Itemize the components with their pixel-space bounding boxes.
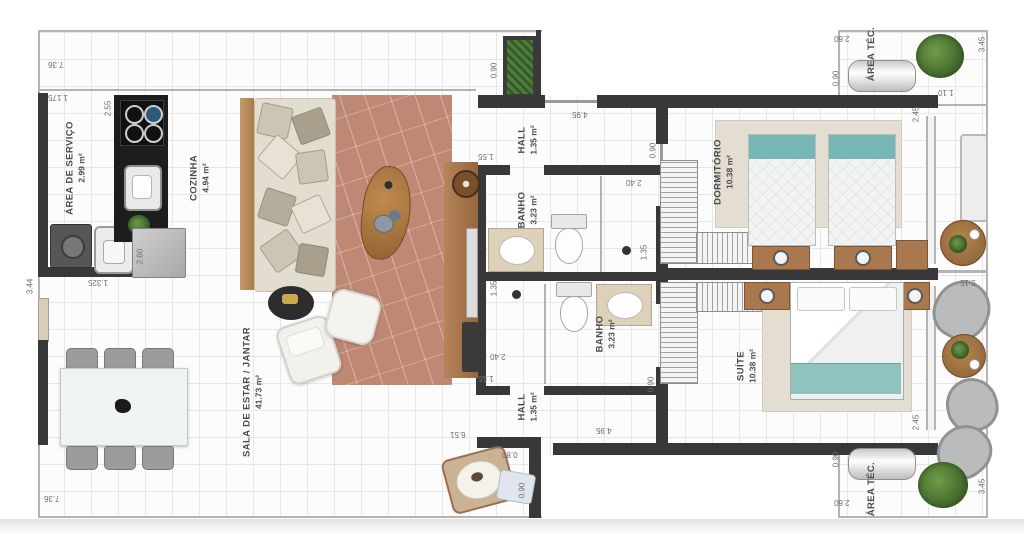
dimension-label: 1.35 [639,245,648,261]
page-shadow [0,519,1024,534]
dimension-label: 6.51 [450,430,466,439]
room-label-hall-inferior: HALL 1.35 m² [516,392,539,421]
wall-clock-icon [452,170,480,198]
dimension-label: 1.175 [48,93,68,102]
dimension-label: 2.60 [135,249,144,265]
dormitorio-desk [896,240,928,270]
dimension-label: 3.44 [25,279,34,295]
outside-area-top [543,30,838,96]
dining-table [60,368,188,446]
room-name: SALA DE ESTAR / JANTAR [241,327,253,457]
wall-planter-side [536,30,541,97]
room-area: 41.73 m² [254,327,265,457]
cooktop-icon [120,100,164,146]
outline-top [38,30,542,32]
room-area: 10.38 m² [748,349,759,383]
room-name: COZINHA [188,155,200,201]
suite-closet-vertical [660,282,698,384]
balcony-table-1 [940,220,986,266]
room-label-area-tec-inferior: ÁREA TÉC. [866,462,878,516]
dimension-label: 2.60 [834,34,850,43]
suite-nightstand-left [744,282,790,310]
room-label-suite: SUÍTE 10.38 m² [735,349,758,383]
floorplan-canvas: { "rooms": { "area_servico": {"name": "Á… [0,0,1024,534]
wall-divider-a [656,108,668,144]
banho2-shower-head [512,290,521,299]
dormitorio-closet-vertical [660,160,698,264]
banho2-toilet-bowl [560,296,588,332]
room-area: 10.38 m² [725,139,736,205]
bush-top-right [916,34,964,78]
banho1-toilet-bowl [555,228,583,264]
dimension-label: 5.15 [960,278,976,287]
room-name: HALL [516,392,528,421]
kitchen-sink-icon [124,165,162,211]
sofa [254,98,336,292]
banho1-shower-head [622,246,631,255]
washing-machine [50,224,92,268]
balcony-bench [960,134,988,222]
dimension-label: 1.55 [478,374,494,383]
dimension-label: 1.35 [489,281,498,297]
single-bed-2 [828,134,896,246]
room-area: 1.35 m² [529,392,540,421]
dimension-label: 4.95 [572,110,588,119]
table-centerpiece [115,399,131,413]
dimension-label: 2.45 [911,107,920,123]
dimension-label: 1.55 [478,152,494,161]
room-label-dormitorio: DORMITÓRIO 10.38 m² [712,139,735,205]
wall-banho1-top-b [544,165,668,175]
dining-chair [66,446,98,470]
dimension-label: 0.90 [648,143,657,159]
side-table [268,286,314,320]
room-name: BANHO [516,192,528,229]
outline-top-right [838,30,988,32]
room-area: 3.23 m² [529,192,540,229]
water-heater-bottom [848,448,916,480]
water-heater-top [848,60,916,92]
dimension-label: 2.60 [834,498,850,507]
dimension-label: 3.45 [977,37,986,53]
double-bed [790,282,904,400]
planter-box [503,36,537,98]
wall-dining-left [38,340,48,445]
banho2-toilet-tank [556,282,592,297]
banho1-shower-glass [600,176,602,272]
dimension-label: 0.90 [517,483,526,499]
room-label-area-tec-superior: ÁREA TÉC. [866,27,878,81]
room-area: 4.94 m² [201,155,212,201]
tv-screen [466,228,478,318]
banho2-shower-glass [544,284,546,384]
room-area: 2.99 m² [77,121,88,215]
room-name: ÁREA DE SERVIÇO [64,121,76,215]
room-label-area-servico: ÁREA DE SERVIÇO 2.99 m² [64,121,87,215]
outline-bottom [38,516,542,518]
dormitorio-nightstand-2 [834,246,892,270]
pillow [849,287,897,311]
room-label-sala: SALA DE ESTAR / JANTAR 41.73 m² [241,327,264,457]
dining-chair [142,446,174,470]
room-name: BANHO [594,316,606,353]
room-area: 1.35 m² [529,125,540,154]
dimension-label: 2.55 [103,101,112,117]
dimension-label: 0.90 [831,452,840,468]
wall-banho-mid [482,272,660,281]
wall-service-left [38,93,48,277]
room-area: 3.23 m² [607,316,618,353]
dimension-label: 4.95 [596,426,612,435]
balcony-table-2 [942,334,986,378]
entry-door [545,100,597,103]
dimension-label: 3.45 [977,479,986,495]
room-name: ÁREA TÉC. [866,27,878,81]
dimension-label: 0.80 [502,450,518,459]
terrace-edge-top-left [38,89,476,91]
room-label-banho-superior: BANHO 3.23 m² [516,192,539,229]
room-name: HALL [516,125,528,154]
outline-bottom-right [838,516,988,518]
wall-banho2-bottom-a [476,386,510,395]
dimension-label: 0.90 [489,63,498,79]
room-label-cozinha: COZINHA 4.94 m² [188,155,211,201]
room-label-banho-inferior: BANHO 3.23 m² [594,316,617,353]
balcony-divider [936,270,986,273]
dimension-label: 0.90 [831,71,840,87]
banho1-toilet-tank [551,214,587,229]
dimension-label: 0.90 [646,377,655,393]
kitchen-counter [114,95,168,242]
single-bed-1 [748,134,816,246]
sofa-back-panel [240,98,254,290]
door-leaf [38,298,49,342]
pet-mat [496,469,537,505]
outside-area-bottom [542,456,838,518]
dimension-label: 2.45 [911,415,920,431]
room-name: SUÍTE [735,349,747,383]
room-label-hall-superior: HALL 1.35 m² [516,125,539,154]
wall-banho1-top-a [476,165,510,175]
dimension-label: 2.40 [626,178,642,187]
dimension-label: 1.10 [938,88,954,97]
dimension-label: 7.36 [48,60,64,69]
balcony-line-top [933,104,986,106]
wall-top-main [597,95,938,108]
dimension-label: 2.40 [490,352,506,361]
tv-console [462,322,478,372]
room-name: ÁREA TÉC. [866,462,878,516]
pillow [797,287,845,311]
dimension-label: 1.325 [88,278,108,287]
room-name: DORMITÓRIO [712,139,724,205]
dormitorio-nightstand-1 [752,246,810,270]
dining-chair [104,446,136,470]
bush-bottom-right [918,462,968,508]
dimension-label: 7.36 [44,494,60,503]
banho1-vanity [488,228,544,272]
